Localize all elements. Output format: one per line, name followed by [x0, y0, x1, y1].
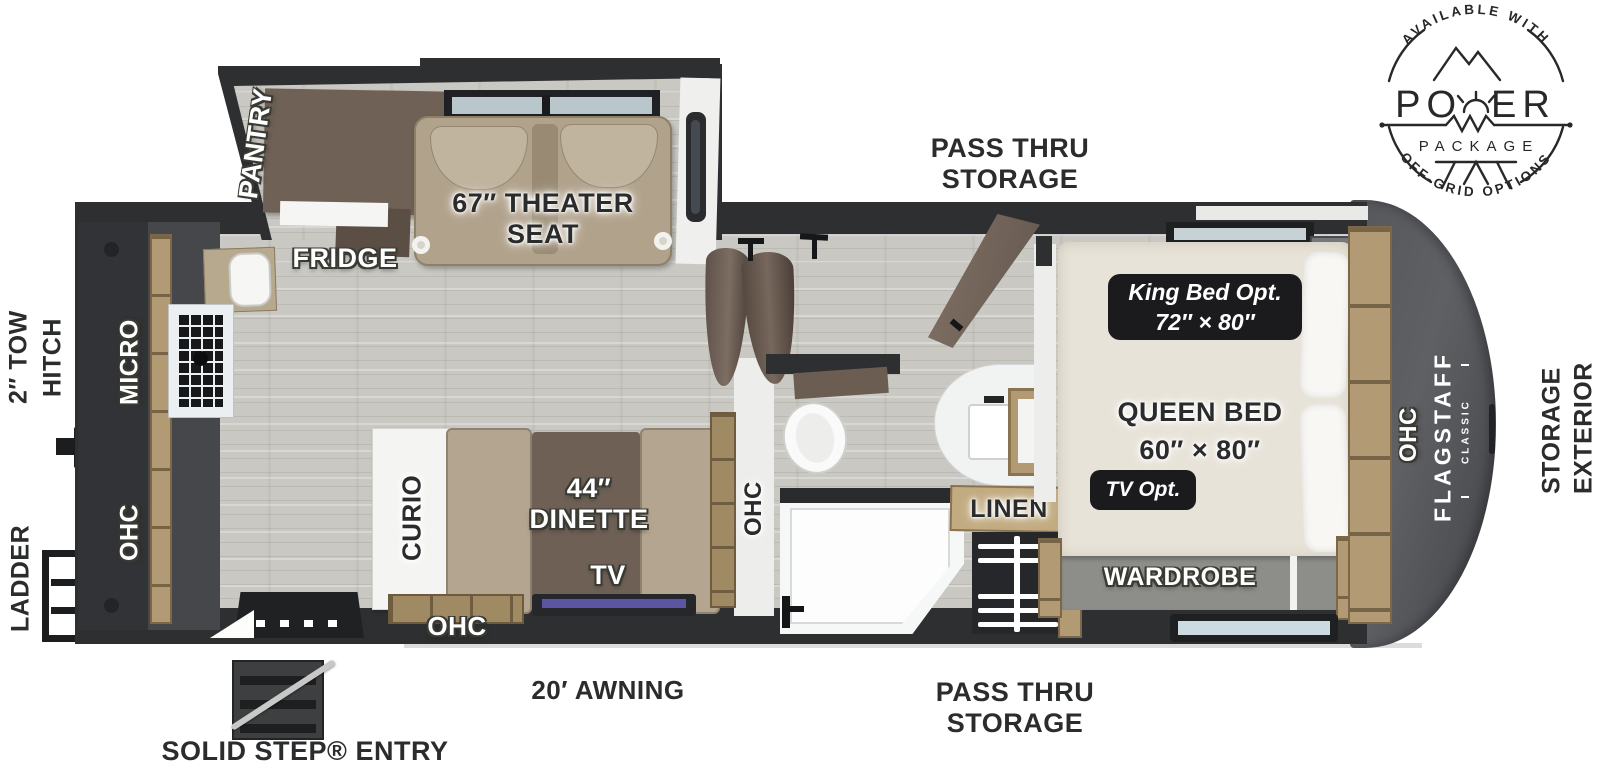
exterior-storage-label-line1: EXTERIOR — [1568, 346, 1600, 510]
curtain-hook-icon — [748, 243, 753, 261]
stove — [168, 304, 234, 418]
theater-seat-label: 67″ THEATER SEAT — [436, 184, 650, 254]
living-ohc-bottom-label: OHC — [420, 610, 494, 642]
kitchen-ohc-label: OHC — [110, 484, 150, 580]
living-ohc-side-label: OHC — [738, 468, 770, 550]
pass-thru-storage-bottom-label: PASS THRU STORAGE — [880, 672, 1150, 744]
kitchen-light-icon — [104, 242, 119, 257]
bedroom-wall-stub — [1036, 236, 1052, 266]
tow-hitch-label-line1: 2″ TOW — [2, 286, 36, 428]
king-bed-option-badge: King Bed Opt. 72″ × 80″ — [1108, 274, 1302, 340]
bedroom-bottom-window — [1170, 614, 1338, 642]
logo-top-arc-text: AVAILABLE WITH — [1399, 4, 1553, 47]
tv-screen-icon — [542, 599, 686, 608]
curio-label: CURIO — [394, 464, 430, 572]
wardrobe-side-post — [1038, 538, 1062, 618]
power-package-logo: AVAILABLE WITH PO ER PACKAGE OFF-GRID OP… — [1352, 4, 1600, 206]
logo-power-right: ER — [1491, 84, 1556, 126]
awning-label: 20′ AWNING — [488, 674, 728, 706]
tv-credenza — [532, 594, 696, 616]
kitchen-cabinets — [150, 234, 172, 624]
bedroom-top-window-sill — [1196, 206, 1368, 220]
kitchen-light-icon — [104, 598, 119, 613]
brand-series-label: CLASSIC — [1458, 376, 1474, 488]
pass-thru-storage-top-label: PASS THRU STORAGE — [880, 128, 1140, 200]
exterior-storage-label-line2: STORAGE — [1536, 356, 1568, 506]
shower-faucet-icon — [782, 596, 790, 628]
pillow-icon — [1299, 403, 1350, 553]
brand-dash — [1461, 496, 1469, 498]
brand-dash — [1461, 364, 1469, 366]
slideout-side-window — [686, 112, 706, 222]
dinette-label: 44″ DINETTE — [516, 468, 662, 540]
tv-option-badge: TV Opt. — [1090, 470, 1196, 510]
pillow-icon — [1299, 251, 1350, 399]
ladder-label: LADDER — [4, 506, 38, 650]
mountains-icon — [1434, 48, 1500, 80]
front-headboard-cabinet — [1348, 226, 1392, 624]
counter-shelf — [280, 201, 388, 227]
sun-icon — [1458, 92, 1494, 112]
vanity-faucet-icon — [984, 396, 1004, 403]
curtain-hook-icon — [812, 239, 817, 259]
logo-package-text: PACKAGE — [1419, 138, 1539, 155]
tow-hitch-label-line2: HITCH — [36, 300, 70, 416]
micro-label: MICRO — [110, 306, 150, 418]
wardrobe-label: WARDROBE — [1086, 560, 1274, 594]
sink-icon — [228, 252, 272, 307]
exterior-storage-latch — [1489, 404, 1495, 454]
bedroom-half-wall — [1034, 244, 1056, 502]
shower-faucet-icon — [790, 606, 804, 612]
queen-bed-label: QUEEN BED 60″ × 80″ — [1100, 392, 1300, 470]
logo-bottom-arc-text: OFF-GRID OPTIONS — [1397, 149, 1554, 199]
bedroom-ohc-label: OHC — [1390, 392, 1428, 478]
tv-label: TV — [582, 558, 634, 592]
fridge-label: FRIDGE — [280, 240, 410, 276]
brand-name-label: FLAGSTAFF — [1428, 318, 1458, 556]
floorplan-canvas: AVAILABLE WITH PO ER PACKAGE OFF-GRID OP… — [0, 0, 1600, 779]
cupholder-icon — [654, 232, 672, 250]
cupholder-icon — [412, 236, 430, 254]
overhead-cabinet-side — [710, 412, 736, 608]
